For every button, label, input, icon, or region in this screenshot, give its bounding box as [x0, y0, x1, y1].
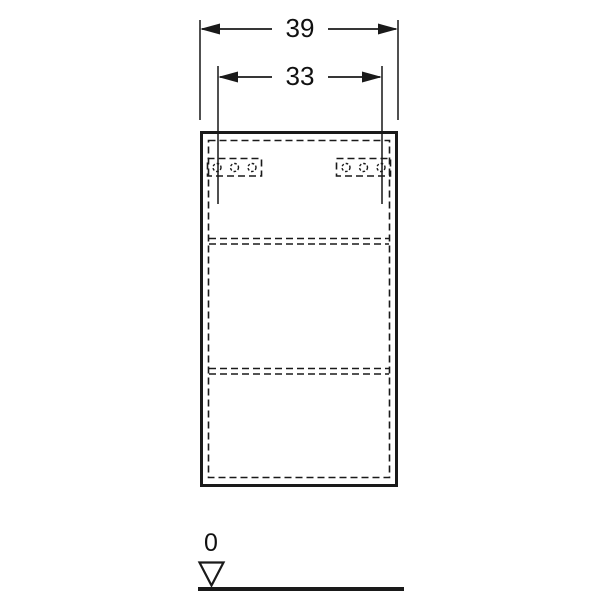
screw-hole: [342, 164, 350, 172]
screw-hole: [213, 164, 221, 172]
dimension-hole-spacing-label: 33: [272, 61, 328, 91]
mounting-bracket-left: [208, 159, 262, 177]
shelf-bottom: [209, 369, 389, 375]
screw-hole: [231, 164, 239, 172]
arrowhead-right-icon: [378, 24, 398, 35]
arrowhead-left-icon: [218, 72, 238, 83]
cabinet-outer-outline: [202, 133, 397, 486]
datum-zero-label: 0: [197, 528, 225, 558]
shelf-top: [209, 239, 389, 245]
arrowhead-right-icon: [362, 72, 382, 83]
dimension-overall-width-label: 39: [272, 13, 328, 43]
bracket-plate: [208, 159, 262, 177]
datum-triangle-icon: [200, 563, 224, 586]
screw-hole: [377, 164, 385, 172]
cabinet-body: [202, 133, 397, 486]
technical-drawing: 39 33 0: [0, 0, 600, 600]
cabinet-inner-dashed-outline: [209, 141, 390, 478]
screw-hole: [360, 164, 368, 172]
arrowhead-left-icon: [200, 24, 220, 35]
screw-hole: [248, 164, 256, 172]
datum-marker: [198, 563, 404, 590]
